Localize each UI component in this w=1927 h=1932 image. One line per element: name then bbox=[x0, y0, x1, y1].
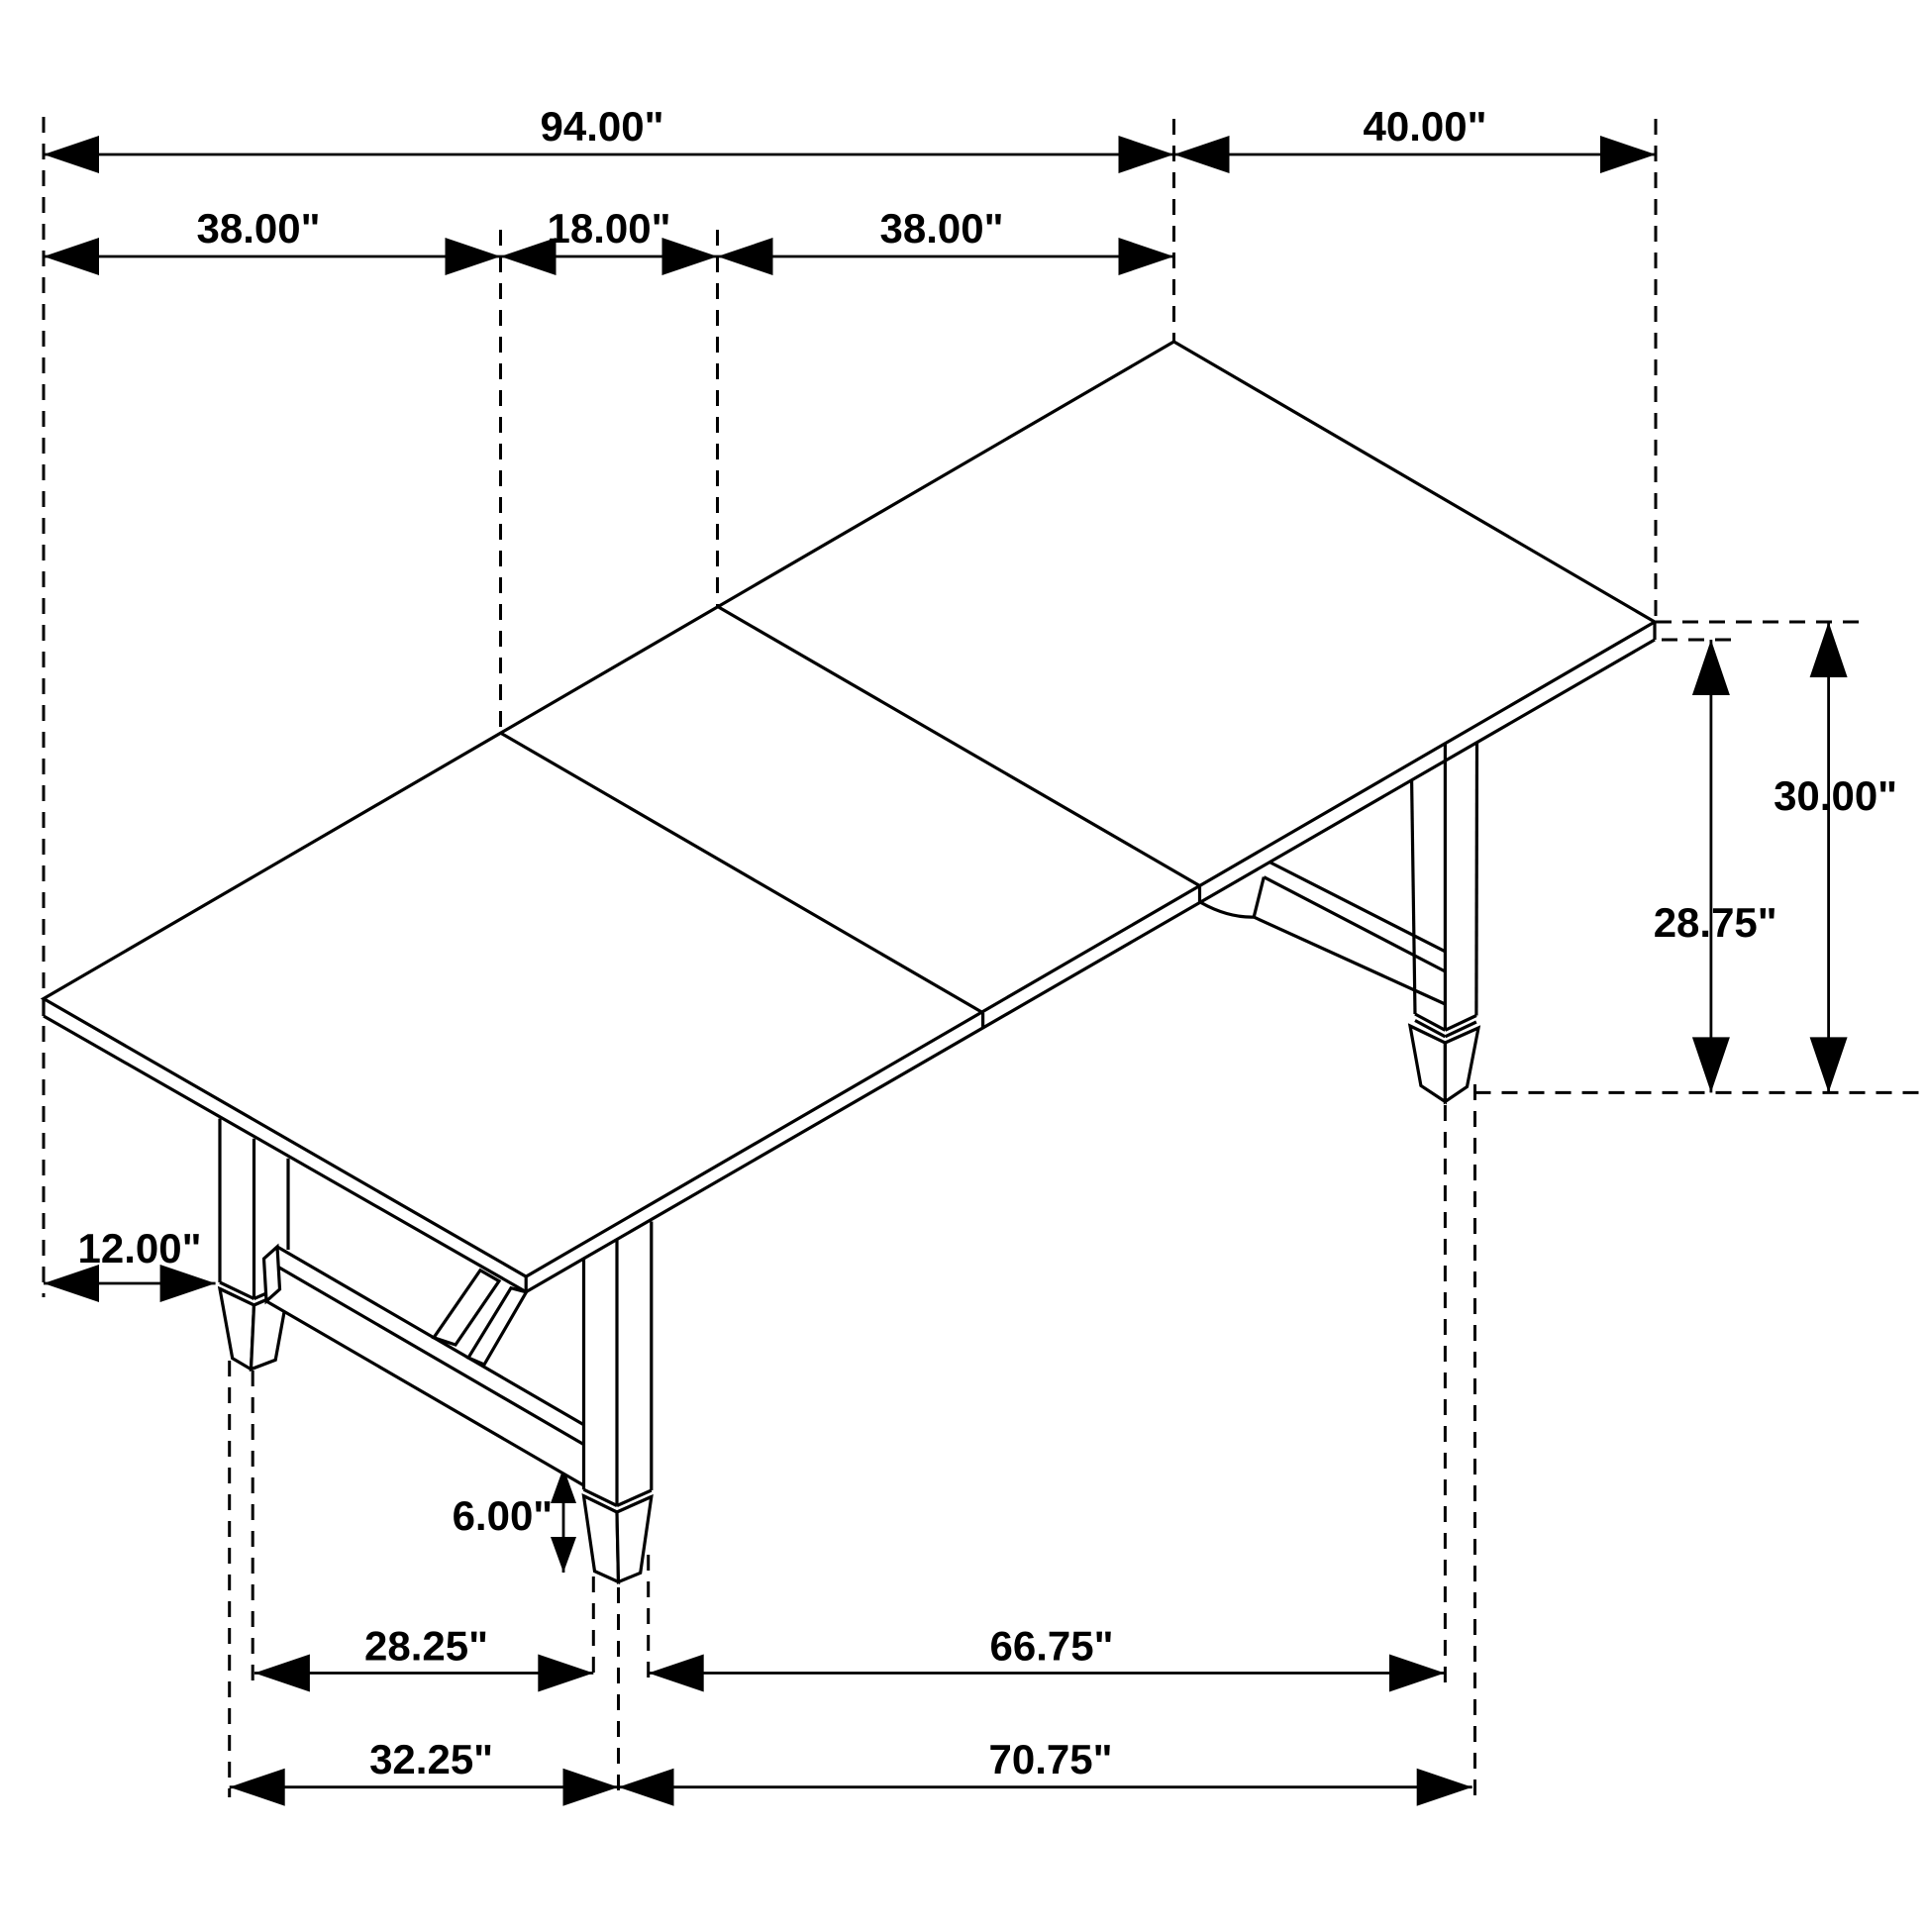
svg-text:28.25": 28.25" bbox=[364, 1623, 488, 1670]
svg-text:28.75": 28.75" bbox=[1654, 899, 1777, 946]
svg-text:66.75": 66.75" bbox=[989, 1623, 1113, 1670]
svg-text:6.00": 6.00" bbox=[453, 1492, 554, 1539]
svg-text:18.00": 18.00" bbox=[547, 205, 670, 252]
svg-text:32.25": 32.25" bbox=[369, 1736, 493, 1782]
svg-text:38.00": 38.00" bbox=[879, 205, 1003, 252]
svg-text:30.00": 30.00" bbox=[1774, 772, 1897, 819]
svg-text:94.00": 94.00" bbox=[540, 103, 663, 150]
svg-text:70.75": 70.75" bbox=[988, 1736, 1112, 1782]
svg-text:38.00": 38.00" bbox=[196, 205, 320, 252]
svg-text:12.00": 12.00" bbox=[77, 1225, 201, 1271]
svg-text:40.00": 40.00" bbox=[1363, 103, 1486, 150]
